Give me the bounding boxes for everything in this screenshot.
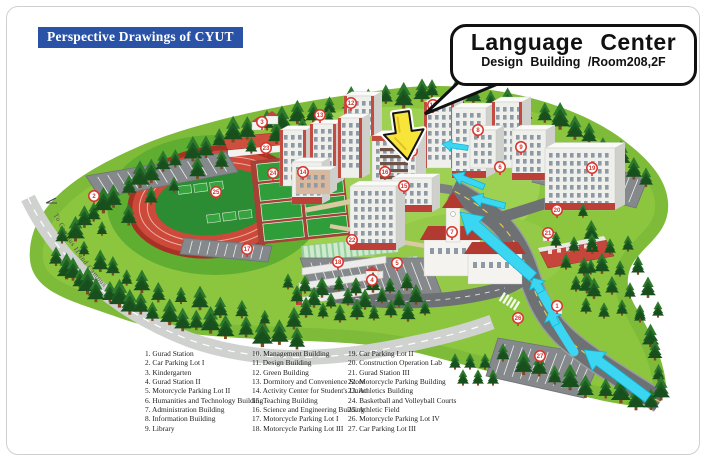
svg-text:24: 24 [270, 171, 277, 177]
svg-text:13: 13 [317, 113, 324, 119]
callout-title: Language Center [453, 29, 694, 55]
svg-text:17: 17 [244, 247, 251, 253]
svg-text:14: 14 [300, 170, 307, 176]
svg-text:21: 21 [545, 231, 552, 237]
svg-text:20: 20 [554, 208, 561, 214]
svg-text:27: 27 [537, 354, 544, 360]
svg-text:19: 19 [589, 166, 596, 172]
page-title: Perspective Drawings of CYUT [38, 27, 243, 48]
svg-text:22: 22 [349, 238, 356, 244]
svg-text:12: 12 [348, 101, 355, 107]
svg-text:23: 23 [263, 146, 270, 152]
callout-subtitle: Design Building /Room208,2F [453, 55, 694, 70]
svg-text:25: 25 [213, 190, 220, 196]
svg-text:26: 26 [515, 316, 522, 322]
svg-text:15: 15 [401, 184, 408, 190]
svg-text:16: 16 [382, 170, 389, 176]
language-center-callout: Language Center Design Building /Room208… [450, 24, 697, 86]
page: To Campus II and Campus III [0, 0, 706, 461]
svg-text:18: 18 [335, 260, 342, 266]
